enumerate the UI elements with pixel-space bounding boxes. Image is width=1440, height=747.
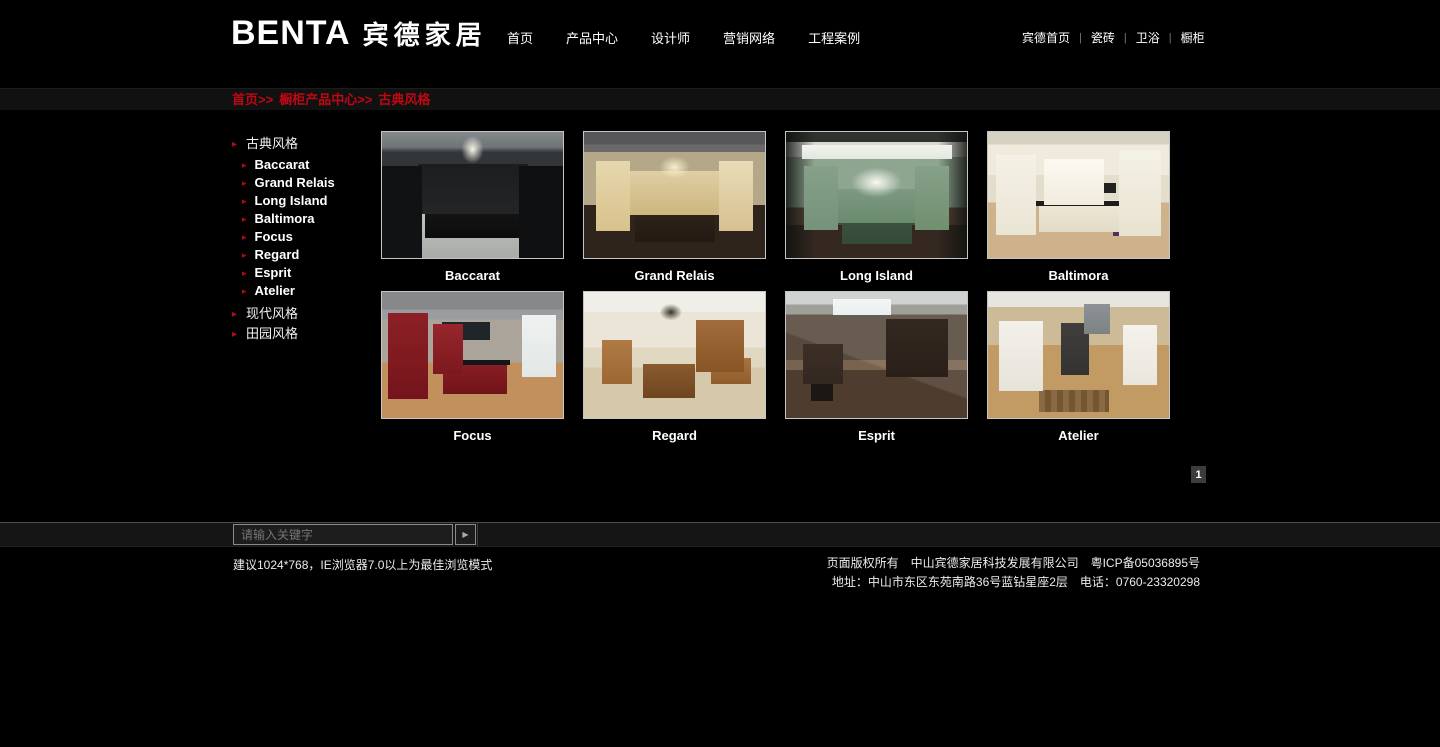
arrow-bullet-icon bbox=[242, 245, 255, 263]
separator: | bbox=[1169, 32, 1172, 44]
product-card-grand-relais[interactable]: Grand Relais bbox=[583, 131, 766, 291]
product-card-atelier[interactable]: Atelier bbox=[987, 291, 1170, 451]
arrow-right-icon: ▶ bbox=[462, 530, 468, 539]
sidebar-item-esprit[interactable]: Esprit bbox=[242, 263, 377, 281]
category-label: 现代风格 bbox=[246, 303, 298, 322]
site-link-benta-home[interactable]: 宾德首页 bbox=[1022, 29, 1070, 46]
search-input[interactable] bbox=[233, 524, 453, 545]
product-grid: Baccarat Grand Relais Long Island Baltim… bbox=[381, 131, 1170, 451]
sidebar-item-long-island[interactable]: Long Island bbox=[242, 191, 377, 209]
arrow-bullet-icon bbox=[242, 281, 255, 299]
breadcrumb-cabinet-center[interactable]: 橱柜产品中心>> bbox=[279, 89, 372, 110]
product-label[interactable]: Baltimora bbox=[987, 259, 1170, 291]
sidebar: 古典风格 Baccarat Grand Relais Long Island B… bbox=[232, 133, 377, 343]
separator: | bbox=[1124, 32, 1127, 44]
sidebar-item-regard[interactable]: Regard bbox=[242, 245, 377, 263]
product-card-focus[interactable]: Focus bbox=[381, 291, 564, 451]
breadcrumb-current-classic-style: 古典风格 bbox=[378, 89, 430, 110]
footer-right-block: 页面版权所有 中山宾德家居科技发展有限公司 粤ICP备05036895号 地址：… bbox=[827, 554, 1200, 592]
sidebar-item-baltimora[interactable]: Baltimora bbox=[242, 209, 377, 227]
product-photo-regard[interactable] bbox=[583, 291, 766, 419]
nav-item-designers[interactable]: 设计师 bbox=[651, 28, 690, 47]
arrow-bullet-icon bbox=[242, 191, 255, 209]
product-label[interactable]: Grand Relais bbox=[583, 259, 766, 291]
site-links: 宾德首页 | 瓷砖 | 卫浴 | 橱柜 bbox=[1022, 29, 1205, 46]
arrow-bullet-icon bbox=[242, 173, 255, 191]
sidebar-category-pastoral-style[interactable]: 田园风格 bbox=[232, 323, 377, 342]
arrow-bullet-icon bbox=[232, 324, 246, 342]
footer: 建议1024*768，IE浏览器7.0以上为最佳浏览模式 页面版权所有 中山宾德… bbox=[0, 547, 1440, 607]
breadcrumb: 首页>> 橱柜产品中心>> 古典风格 bbox=[232, 89, 430, 110]
category-label: 田园风格 bbox=[246, 323, 298, 342]
site-header: BENTA 宾德家居 首页 产品中心 设计师 营销网络 工程案例 宾德首页 | … bbox=[0, 0, 1440, 88]
search-bar: ▶ bbox=[0, 522, 1440, 547]
sidebar-sublist-classic: Baccarat Grand Relais Long Island Baltim… bbox=[232, 155, 377, 299]
nav-item-projects[interactable]: 工程案例 bbox=[808, 28, 860, 47]
product-photo-grand-relais[interactable] bbox=[583, 131, 766, 259]
site-link-cabinets[interactable]: 橱柜 bbox=[1181, 29, 1205, 46]
product-label[interactable]: Baccarat bbox=[381, 259, 564, 291]
search-button[interactable]: ▶ bbox=[455, 524, 476, 545]
product-photo-baccarat[interactable] bbox=[381, 131, 564, 259]
nav-item-marketing-network[interactable]: 营销网络 bbox=[723, 28, 775, 47]
category-label: 古典风格 bbox=[246, 133, 298, 152]
product-label[interactable]: Regard bbox=[583, 419, 766, 451]
product-photo-atelier[interactable] bbox=[987, 291, 1170, 419]
arrow-bullet-icon bbox=[242, 209, 255, 227]
product-label[interactable]: Long Island bbox=[785, 259, 968, 291]
product-card-baltimora[interactable]: Baltimora bbox=[987, 131, 1170, 291]
copyright-text: 页面版权所有 中山宾德家居科技发展有限公司 粤ICP备05036895号 bbox=[827, 554, 1200, 573]
arrow-bullet-icon bbox=[242, 227, 255, 245]
product-label[interactable]: Esprit bbox=[785, 419, 968, 451]
breadcrumb-home[interactable]: 首页>> bbox=[232, 89, 273, 110]
nav-item-products[interactable]: 产品中心 bbox=[566, 28, 618, 47]
logo[interactable]: BENTA 宾德家居 bbox=[231, 14, 487, 53]
sidebar-item-grand-relais[interactable]: Grand Relais bbox=[242, 173, 377, 191]
product-photo-focus[interactable] bbox=[381, 291, 564, 419]
arrow-bullet-icon bbox=[242, 155, 255, 173]
sidebar-category-modern-style[interactable]: 现代风格 bbox=[232, 303, 377, 322]
product-label[interactable]: Atelier bbox=[987, 419, 1170, 451]
logo-text-cn: 宾德家居 bbox=[363, 15, 487, 52]
sidebar-item-baccarat[interactable]: Baccarat bbox=[242, 155, 377, 173]
arrow-bullet-icon bbox=[242, 263, 255, 281]
browser-recommendation-text: 建议1024*768，IE浏览器7.0以上为最佳浏览模式 bbox=[233, 556, 492, 573]
nav-item-home[interactable]: 首页 bbox=[507, 28, 533, 47]
site-link-bathroom[interactable]: 卫浴 bbox=[1136, 29, 1160, 46]
product-photo-esprit[interactable] bbox=[785, 291, 968, 419]
main-nav: 首页 产品中心 设计师 营销网络 工程案例 bbox=[507, 28, 860, 47]
arrow-bullet-icon bbox=[232, 134, 246, 152]
sidebar-category-classic-style[interactable]: 古典风格 bbox=[232, 133, 377, 152]
product-card-long-island[interactable]: Long Island bbox=[785, 131, 968, 291]
site-link-tiles[interactable]: 瓷砖 bbox=[1091, 29, 1115, 46]
product-card-regard[interactable]: Regard bbox=[583, 291, 766, 451]
product-photo-baltimora[interactable] bbox=[987, 131, 1170, 259]
address-text: 地址：中山市东区东苑南路36号蓝钻星座2层 电话：0760-23320298 bbox=[827, 573, 1200, 592]
breadcrumb-bar: 首页>> 橱柜产品中心>> 古典风格 bbox=[0, 88, 1440, 110]
divider bbox=[477, 523, 478, 546]
pagination-page-1[interactable]: 1 bbox=[1191, 466, 1206, 483]
separator: | bbox=[1079, 32, 1082, 44]
logo-text-en: BENTA bbox=[231, 14, 351, 53]
sidebar-item-atelier[interactable]: Atelier bbox=[242, 281, 377, 299]
sidebar-item-focus[interactable]: Focus bbox=[242, 227, 377, 245]
product-photo-long-island[interactable] bbox=[785, 131, 968, 259]
product-card-baccarat[interactable]: Baccarat bbox=[381, 131, 564, 291]
product-label[interactable]: Focus bbox=[381, 419, 564, 451]
arrow-bullet-icon bbox=[232, 304, 246, 322]
product-card-esprit[interactable]: Esprit bbox=[785, 291, 968, 451]
